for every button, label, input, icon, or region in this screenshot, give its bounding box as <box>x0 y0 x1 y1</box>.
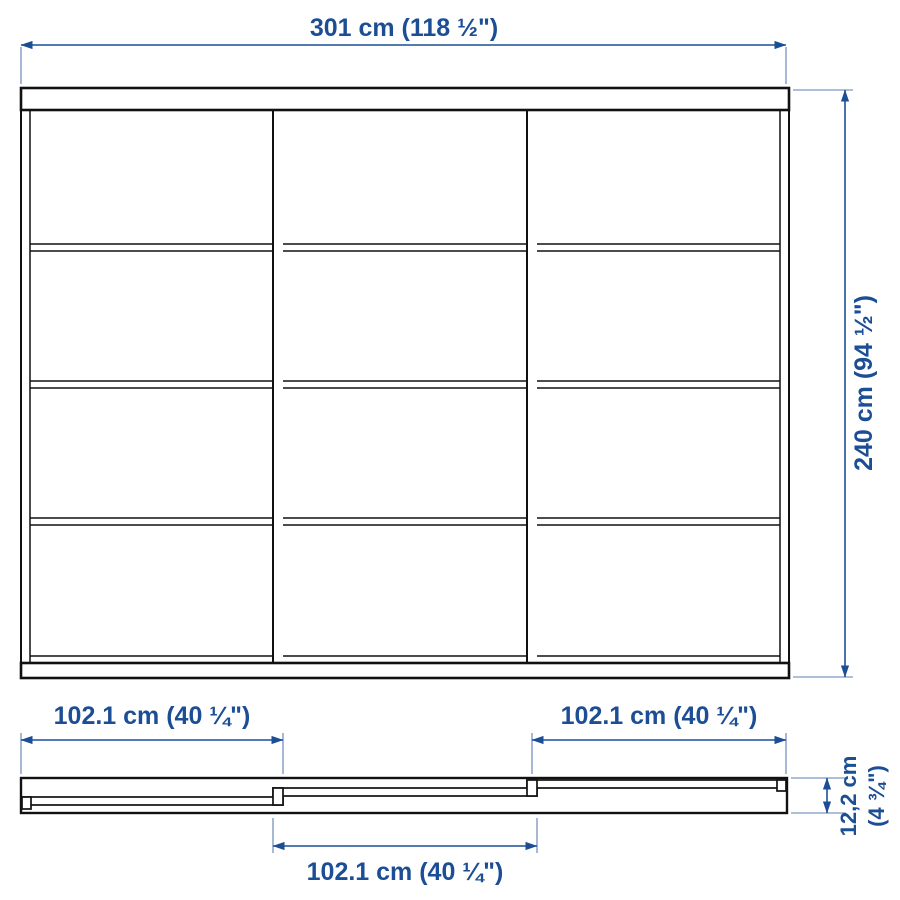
dimension-total-width: 301 cm (118 ½") <box>21 14 786 84</box>
door-end-cap-junction-left <box>273 788 283 805</box>
dimension-door-right-width: 102.1 cm (40 ¼") <box>532 702 786 774</box>
bottom-track-rail <box>21 663 789 678</box>
total-height-label: 240 cm (94 ½") <box>850 295 878 471</box>
door-right-width-label: 102.1 cm (40 ¼") <box>561 702 758 730</box>
door-panel-left <box>21 110 283 663</box>
dimension-depth: 12,2 cm (4 ¾") <box>791 756 889 837</box>
top-view-door-center <box>273 788 537 796</box>
door-center-width-label: 102.1 cm (40 ¼") <box>307 858 504 886</box>
depth-label-line2: (4 ¾") <box>864 765 889 827</box>
top-view-door-left <box>22 797 283 805</box>
depth-label-line1: 12,2 cm <box>836 756 861 837</box>
door-end-cap-junction-right <box>527 780 537 796</box>
top-view <box>21 778 787 813</box>
dimension-door-center-width: 102.1 cm (40 ¼") <box>273 818 537 886</box>
dimension-door-left-width: 102.1 cm (40 ¼") <box>21 702 283 774</box>
top-track-rail <box>21 88 789 110</box>
front-view <box>21 88 789 678</box>
door-panel-center <box>273 110 537 663</box>
door-end-cap-right <box>777 780 786 791</box>
door-left-width-label: 102.1 cm (40 ¼") <box>54 702 251 730</box>
dimension-total-height: 240 cm (94 ½") <box>793 90 878 677</box>
product-dimension-diagram: 301 cm (118 ½") 240 cm (94 ½") 102.1 cm … <box>0 0 900 900</box>
diagram-svg: 301 cm (118 ½") 240 cm (94 ½") 102.1 cm … <box>0 0 900 900</box>
top-view-door-right <box>527 780 786 788</box>
total-width-label: 301 cm (118 ½") <box>310 14 498 42</box>
door-panel-right <box>527 110 789 663</box>
door-end-cap-left <box>22 797 31 809</box>
